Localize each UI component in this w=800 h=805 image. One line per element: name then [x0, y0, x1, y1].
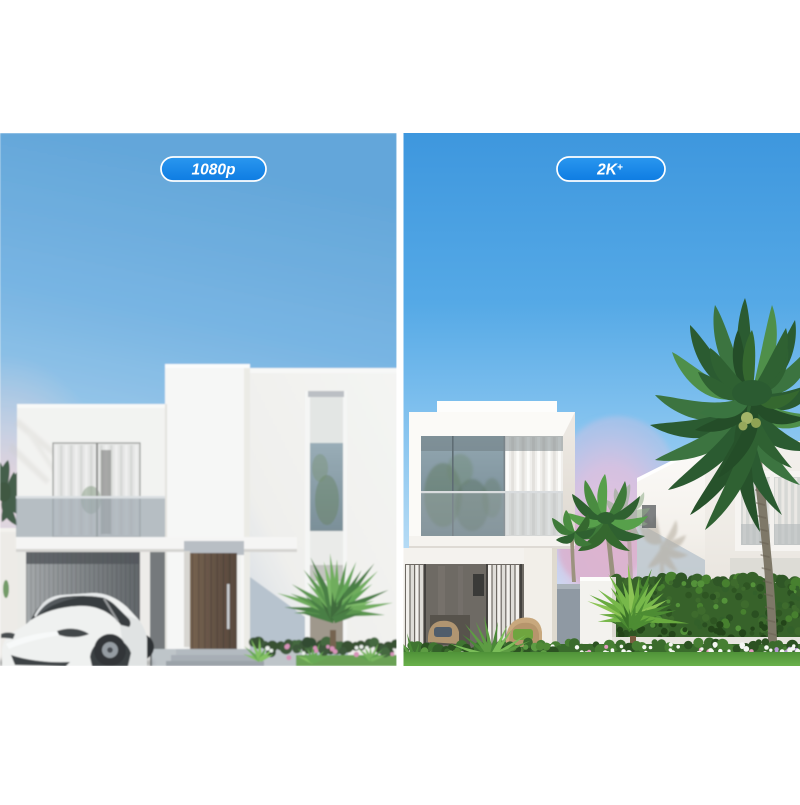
svg-text:1080p: 1080p — [192, 162, 236, 179]
